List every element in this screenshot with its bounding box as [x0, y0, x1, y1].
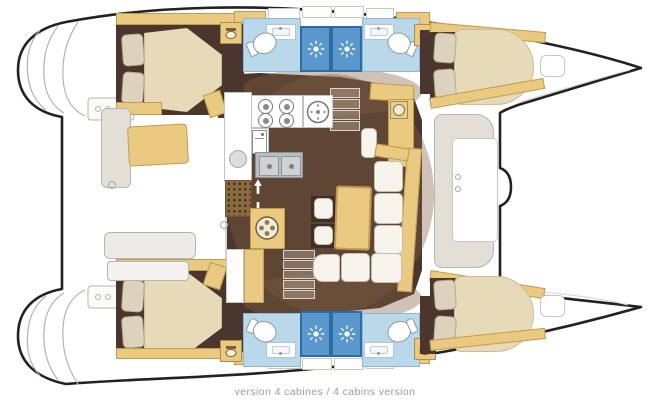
saloon-dining-table	[334, 185, 372, 250]
fridge-icon	[252, 130, 267, 154]
port-forward-bed-pillow	[433, 32, 457, 63]
forward-seat-fitting	[455, 174, 461, 180]
cockpit-aft-bench	[104, 232, 196, 259]
port-aft-vanity	[220, 22, 242, 44]
sofa-cushion	[374, 225, 403, 254]
galley-stove-counter	[251, 95, 303, 128]
port-companionway-step	[330, 110, 360, 120]
sofa-end-cushion	[313, 254, 340, 282]
washing-machine-icon	[251, 209, 284, 248]
port-companionway-step	[330, 121, 360, 131]
stbd-companionway-step	[283, 250, 315, 259]
port-aft-bed-pillow	[121, 71, 145, 104]
stbd-hull-locker	[334, 358, 364, 370]
washing-machine-cabinet	[250, 208, 285, 249]
chart-instrument-icon	[390, 101, 408, 119]
stbd-forward-bed-pillow	[433, 279, 457, 310]
plan-caption: version 4 cabines / 4 cabins version	[175, 386, 475, 402]
port-aft-bed-pillow	[121, 33, 145, 66]
round-sink-icon	[304, 96, 332, 127]
stbd-bow-deck-hatch	[540, 295, 565, 317]
port-hull-locker	[334, 6, 364, 18]
galley-left-counter	[224, 92, 252, 182]
galley-double-sink	[255, 152, 303, 178]
galley-cabinet-column	[244, 249, 264, 303]
companionway-floor-grate	[225, 180, 252, 217]
galley-round-sink-counter	[303, 95, 333, 128]
sofa-cushion	[374, 161, 403, 192]
stove-burner-icon	[258, 113, 273, 128]
stbd-aft-shower	[300, 311, 331, 357]
stbd-forward-shower	[331, 311, 362, 357]
showerhead-icon	[306, 39, 326, 59]
galley-floor-hatch	[229, 150, 247, 168]
stbd-aft-bed-pillow	[121, 315, 145, 348]
sofa-cushion	[341, 253, 370, 282]
stbd-companionway-step	[283, 260, 315, 269]
stove-burner-icon	[279, 99, 294, 114]
cockpit-bench-shadow	[107, 261, 189, 281]
deck-cleat	[108, 181, 116, 189]
sofa-corner-cushion	[371, 253, 402, 283]
stool-cushion	[314, 226, 333, 245]
stbd-companionway-step	[283, 270, 315, 279]
saloon-door-panel	[226, 249, 244, 303]
port-forward-shower	[331, 26, 362, 72]
sofa-cushion	[374, 193, 403, 224]
vanity-basin-icon	[224, 27, 238, 39]
sink-basin-icon	[259, 156, 279, 176]
port-companionway-step	[330, 99, 360, 109]
stbd-hull-locker	[302, 358, 332, 370]
port-aft-shower	[300, 26, 331, 72]
deck-cleat	[220, 221, 228, 229]
showerhead-icon	[337, 324, 357, 344]
port-bow-deck-hatch	[540, 55, 565, 77]
stbd-aft-bed-pillow	[121, 279, 145, 312]
showerhead-icon	[337, 39, 357, 59]
forward-seat-fitting	[455, 186, 461, 192]
stbd-aft-vanity	[220, 340, 242, 362]
stbd-companionway-step	[283, 290, 315, 299]
sink-basin-icon	[281, 156, 301, 176]
stove-burner-icon	[258, 99, 273, 114]
showerhead-icon	[306, 324, 326, 344]
stbd-forward-bathroom-sink	[364, 342, 394, 358]
port-companionway-step	[330, 88, 360, 98]
port-hull-locker	[302, 6, 332, 18]
stove-burner-icon	[279, 113, 294, 128]
stool-cushion	[314, 198, 333, 219]
cockpit-side-bench	[101, 108, 131, 188]
floor-plan-canvas: version 4 cabines / 4 cabins version	[0, 0, 650, 406]
foredeck-lines	[515, 70, 630, 305]
cockpit-bench-cushion	[127, 123, 189, 166]
stbd-companionway-step	[283, 280, 315, 289]
vanity-basin-icon	[224, 345, 238, 357]
